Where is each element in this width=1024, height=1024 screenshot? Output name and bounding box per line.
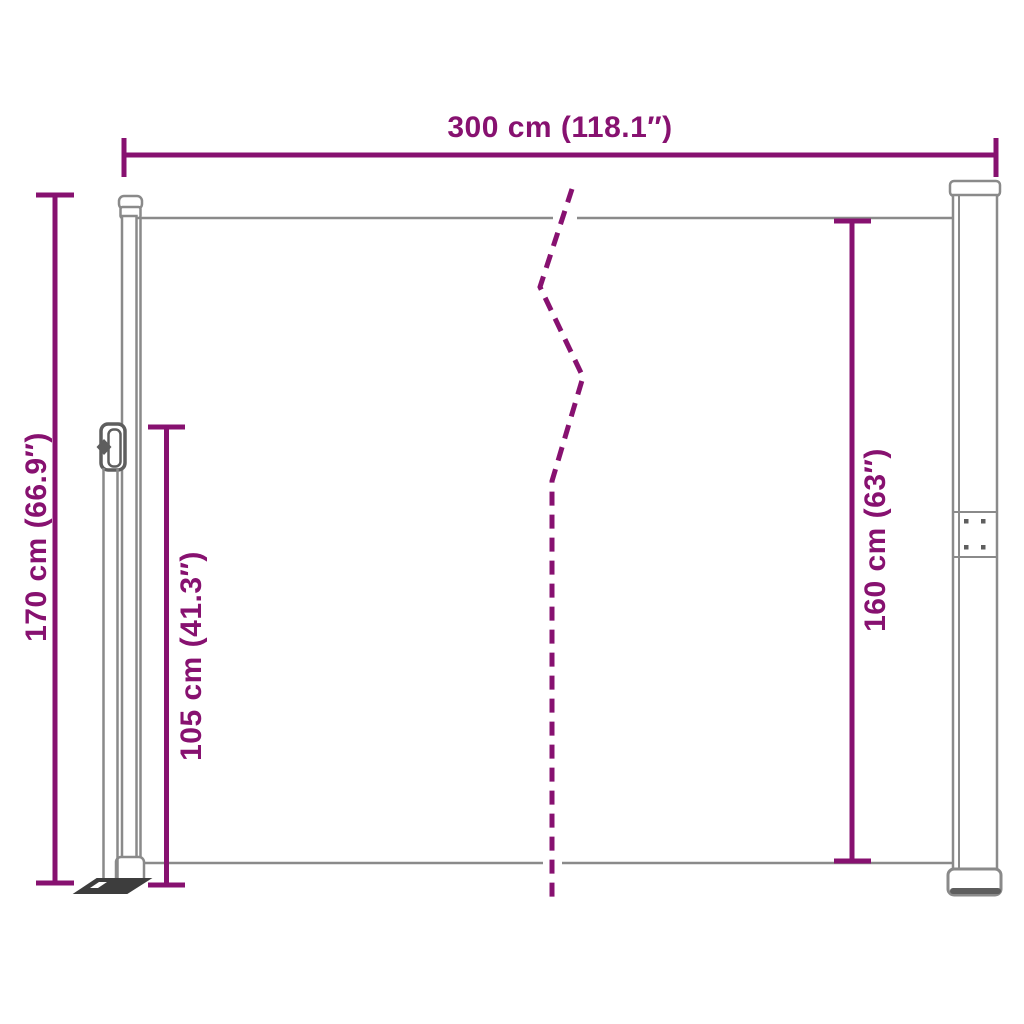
handle-bracket: [97, 424, 126, 470]
cassette-pole: [948, 181, 1001, 895]
left-pole: [116, 196, 144, 883]
support-post: [104, 468, 118, 880]
dimension-diagram: 300 cm (118.1″) 170 cm (66.9″) 105 cm (4…: [0, 0, 1024, 1024]
width-dimension-label: 300 cm (118.1″): [447, 111, 672, 145]
cassette-height-dimension-label: 160 cm (63″): [859, 448, 893, 632]
left-pole-body: [122, 216, 137, 860]
screen-height-dimension-label: 105 cm (41.3″): [175, 551, 209, 761]
total-height-dimension-label: 170 cm (66.9″): [20, 432, 54, 642]
base-plate: [76, 879, 149, 893]
break-line: [540, 189, 583, 897]
